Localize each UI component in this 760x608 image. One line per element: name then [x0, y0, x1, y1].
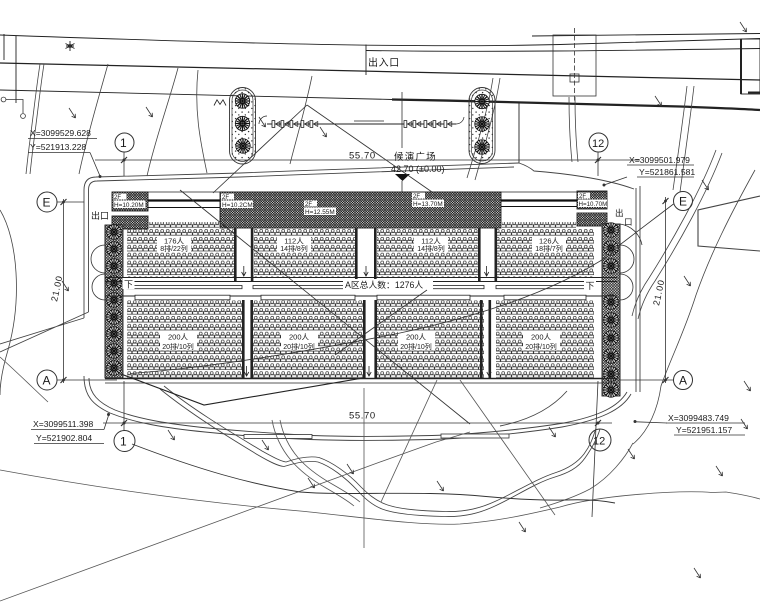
svg-text:E: E [679, 195, 687, 209]
svg-text:H=12.55M: H=12.55M [305, 209, 335, 216]
svg-text:A: A [679, 374, 687, 388]
svg-text:A区总人数：1276人: A区总人数：1276人 [345, 279, 423, 290]
svg-text:Y=521913.228: Y=521913.228 [30, 142, 86, 152]
svg-text:18排/7列: 18排/7列 [535, 244, 563, 253]
svg-text:下: 下 [124, 280, 133, 290]
svg-text:X=3099501.979: X=3099501.979 [629, 155, 690, 165]
svg-text:21.00: 21.00 [49, 274, 64, 302]
svg-text:8排/22列: 8排/22列 [160, 244, 188, 253]
svg-text:126人: 126人 [539, 237, 560, 246]
svg-text:14排/8列: 14排/8列 [280, 244, 308, 253]
svg-text:H=10.2CM: H=10.2CM [222, 202, 253, 209]
svg-text:E: E [43, 196, 51, 210]
svg-text:200人: 200人 [168, 333, 189, 342]
svg-text:112人: 112人 [421, 237, 441, 246]
svg-text:下: 下 [586, 281, 595, 291]
svg-text:200人: 200人 [531, 333, 552, 342]
svg-text:20排/10列: 20排/10列 [525, 342, 557, 351]
svg-text:H=10.70M: H=10.70M [579, 201, 608, 208]
svg-text:200人: 200人 [406, 333, 427, 342]
svg-text:X=3099483.749: X=3099483.749 [668, 413, 729, 423]
svg-text:12: 12 [592, 138, 604, 150]
svg-text:55.70: 55.70 [349, 151, 376, 162]
svg-text:1: 1 [120, 136, 127, 150]
svg-text:Y=521902.804: Y=521902.804 [36, 433, 92, 443]
svg-text:2F: 2F [579, 194, 586, 200]
svg-text:出: 出 [615, 208, 624, 218]
svg-text:X=3099511.398: X=3099511.398 [33, 419, 94, 429]
svg-text:176人: 176人 [164, 237, 185, 246]
svg-text:Y=521951.157: Y=521951.157 [676, 425, 732, 435]
svg-text:20排/10列: 20排/10列 [400, 342, 432, 351]
svg-text:H=10.20M: H=10.20M [114, 202, 144, 209]
svg-text:1: 1 [120, 435, 127, 449]
svg-text:2F: 2F [413, 194, 420, 200]
svg-text:112人: 112人 [284, 237, 304, 246]
svg-text:2F: 2F [305, 202, 312, 208]
svg-text:候演广场: 候演广场 [394, 151, 437, 163]
svg-text:2F: 2F [114, 195, 121, 201]
svg-text:20排/10列: 20排/10列 [162, 342, 194, 351]
svg-text:口: 口 [624, 217, 633, 227]
svg-text:H=13.70M: H=13.70M [413, 201, 443, 208]
svg-text:Y=521861.581: Y=521861.581 [639, 167, 695, 177]
svg-text:A: A [43, 374, 51, 388]
svg-text:出口: 出口 [91, 210, 109, 221]
svg-text:X=3099529.628: X=3099529.628 [30, 128, 91, 138]
svg-text:200人: 200人 [289, 333, 310, 342]
svg-text:55.70: 55.70 [349, 411, 376, 422]
svg-text:14排/8列: 14排/8列 [417, 244, 445, 253]
svg-text:2F: 2F [222, 195, 229, 201]
svg-text:出入口: 出入口 [368, 56, 400, 69]
